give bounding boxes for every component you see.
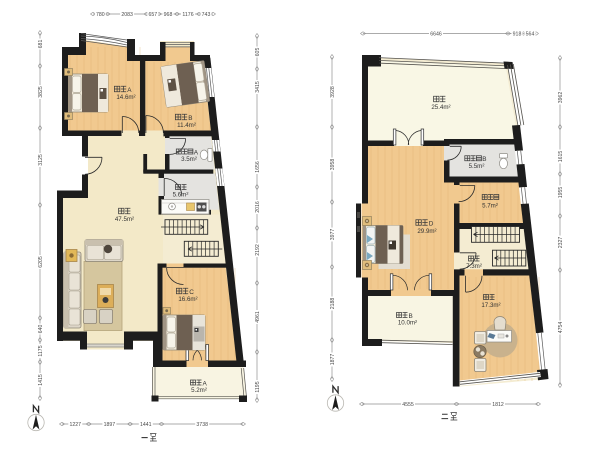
svg-text:564: 564 [526,31,535,37]
svg-text:14.6m²: 14.6m² [116,94,135,101]
svg-text:C: C [189,289,194,296]
svg-text:3415: 3415 [255,81,261,93]
svg-text:A: A [127,87,132,94]
svg-text:D: D [429,221,434,228]
svg-text:1615: 1615 [558,151,564,163]
svg-text:25.4m²: 25.4m² [431,104,450,111]
svg-text:743: 743 [202,12,211,18]
svg-text:1897: 1897 [104,422,116,428]
svg-text:3738: 3738 [196,422,208,428]
svg-text:10.0m²: 10.0m² [398,320,417,327]
svg-text:B: B [188,115,192,122]
svg-text:605: 605 [255,48,261,57]
svg-text:1656: 1656 [255,161,261,173]
svg-text:3958: 3958 [330,159,336,171]
svg-text:681: 681 [38,40,44,49]
svg-text:640: 640 [38,325,44,334]
svg-text:2192: 2192 [255,244,261,256]
svg-text:4555: 4555 [402,402,414,408]
svg-text:5.2m²: 5.2m² [191,387,207,394]
svg-text:2188: 2188 [330,298,336,310]
svg-text:1176: 1176 [182,12,193,18]
svg-text:2083: 2083 [121,12,133,18]
svg-text:2327: 2327 [558,237,564,249]
svg-text:1227: 1227 [70,422,82,428]
svg-text:2016: 2016 [255,201,261,213]
svg-text:16.6m²: 16.6m² [178,296,197,303]
svg-text:1955: 1955 [558,187,564,199]
svg-text:11.4m²: 11.4m² [177,122,196,129]
svg-text:968: 968 [164,12,173,18]
svg-text:4754: 4754 [558,322,564,334]
svg-text:1441: 1441 [140,422,152,428]
svg-text:1812: 1812 [492,402,504,408]
svg-text:29.9m²: 29.9m² [417,228,436,235]
svg-text:3977: 3977 [330,229,336,241]
svg-text:6646: 6646 [430,31,442,37]
svg-text:5.7m²: 5.7m² [482,203,498,210]
svg-text:1877: 1877 [330,354,336,366]
svg-text:47.5m²: 47.5m² [115,216,134,223]
svg-text:3825: 3825 [38,86,44,98]
svg-text:3928: 3928 [330,86,336,98]
svg-text:3.5m²: 3.5m² [181,156,197,163]
svg-text:3962: 3962 [558,92,564,104]
svg-text:5.5m²: 5.5m² [469,163,485,170]
svg-text:17.3m²: 17.3m² [481,302,500,309]
svg-text:780: 780 [96,12,105,18]
svg-text:3125: 3125 [38,154,44,166]
svg-text:5.6m²: 5.6m² [173,192,189,199]
svg-text:918: 918 [513,31,522,37]
svg-text:1175: 1175 [38,345,44,356]
svg-text:6205: 6205 [38,256,44,268]
svg-text:7.3m²: 7.3m² [466,263,482,270]
svg-text:657: 657 [148,12,157,18]
svg-text:1415: 1415 [38,374,44,386]
svg-text:4961: 4961 [255,311,261,323]
svg-text:1195: 1195 [255,381,261,392]
